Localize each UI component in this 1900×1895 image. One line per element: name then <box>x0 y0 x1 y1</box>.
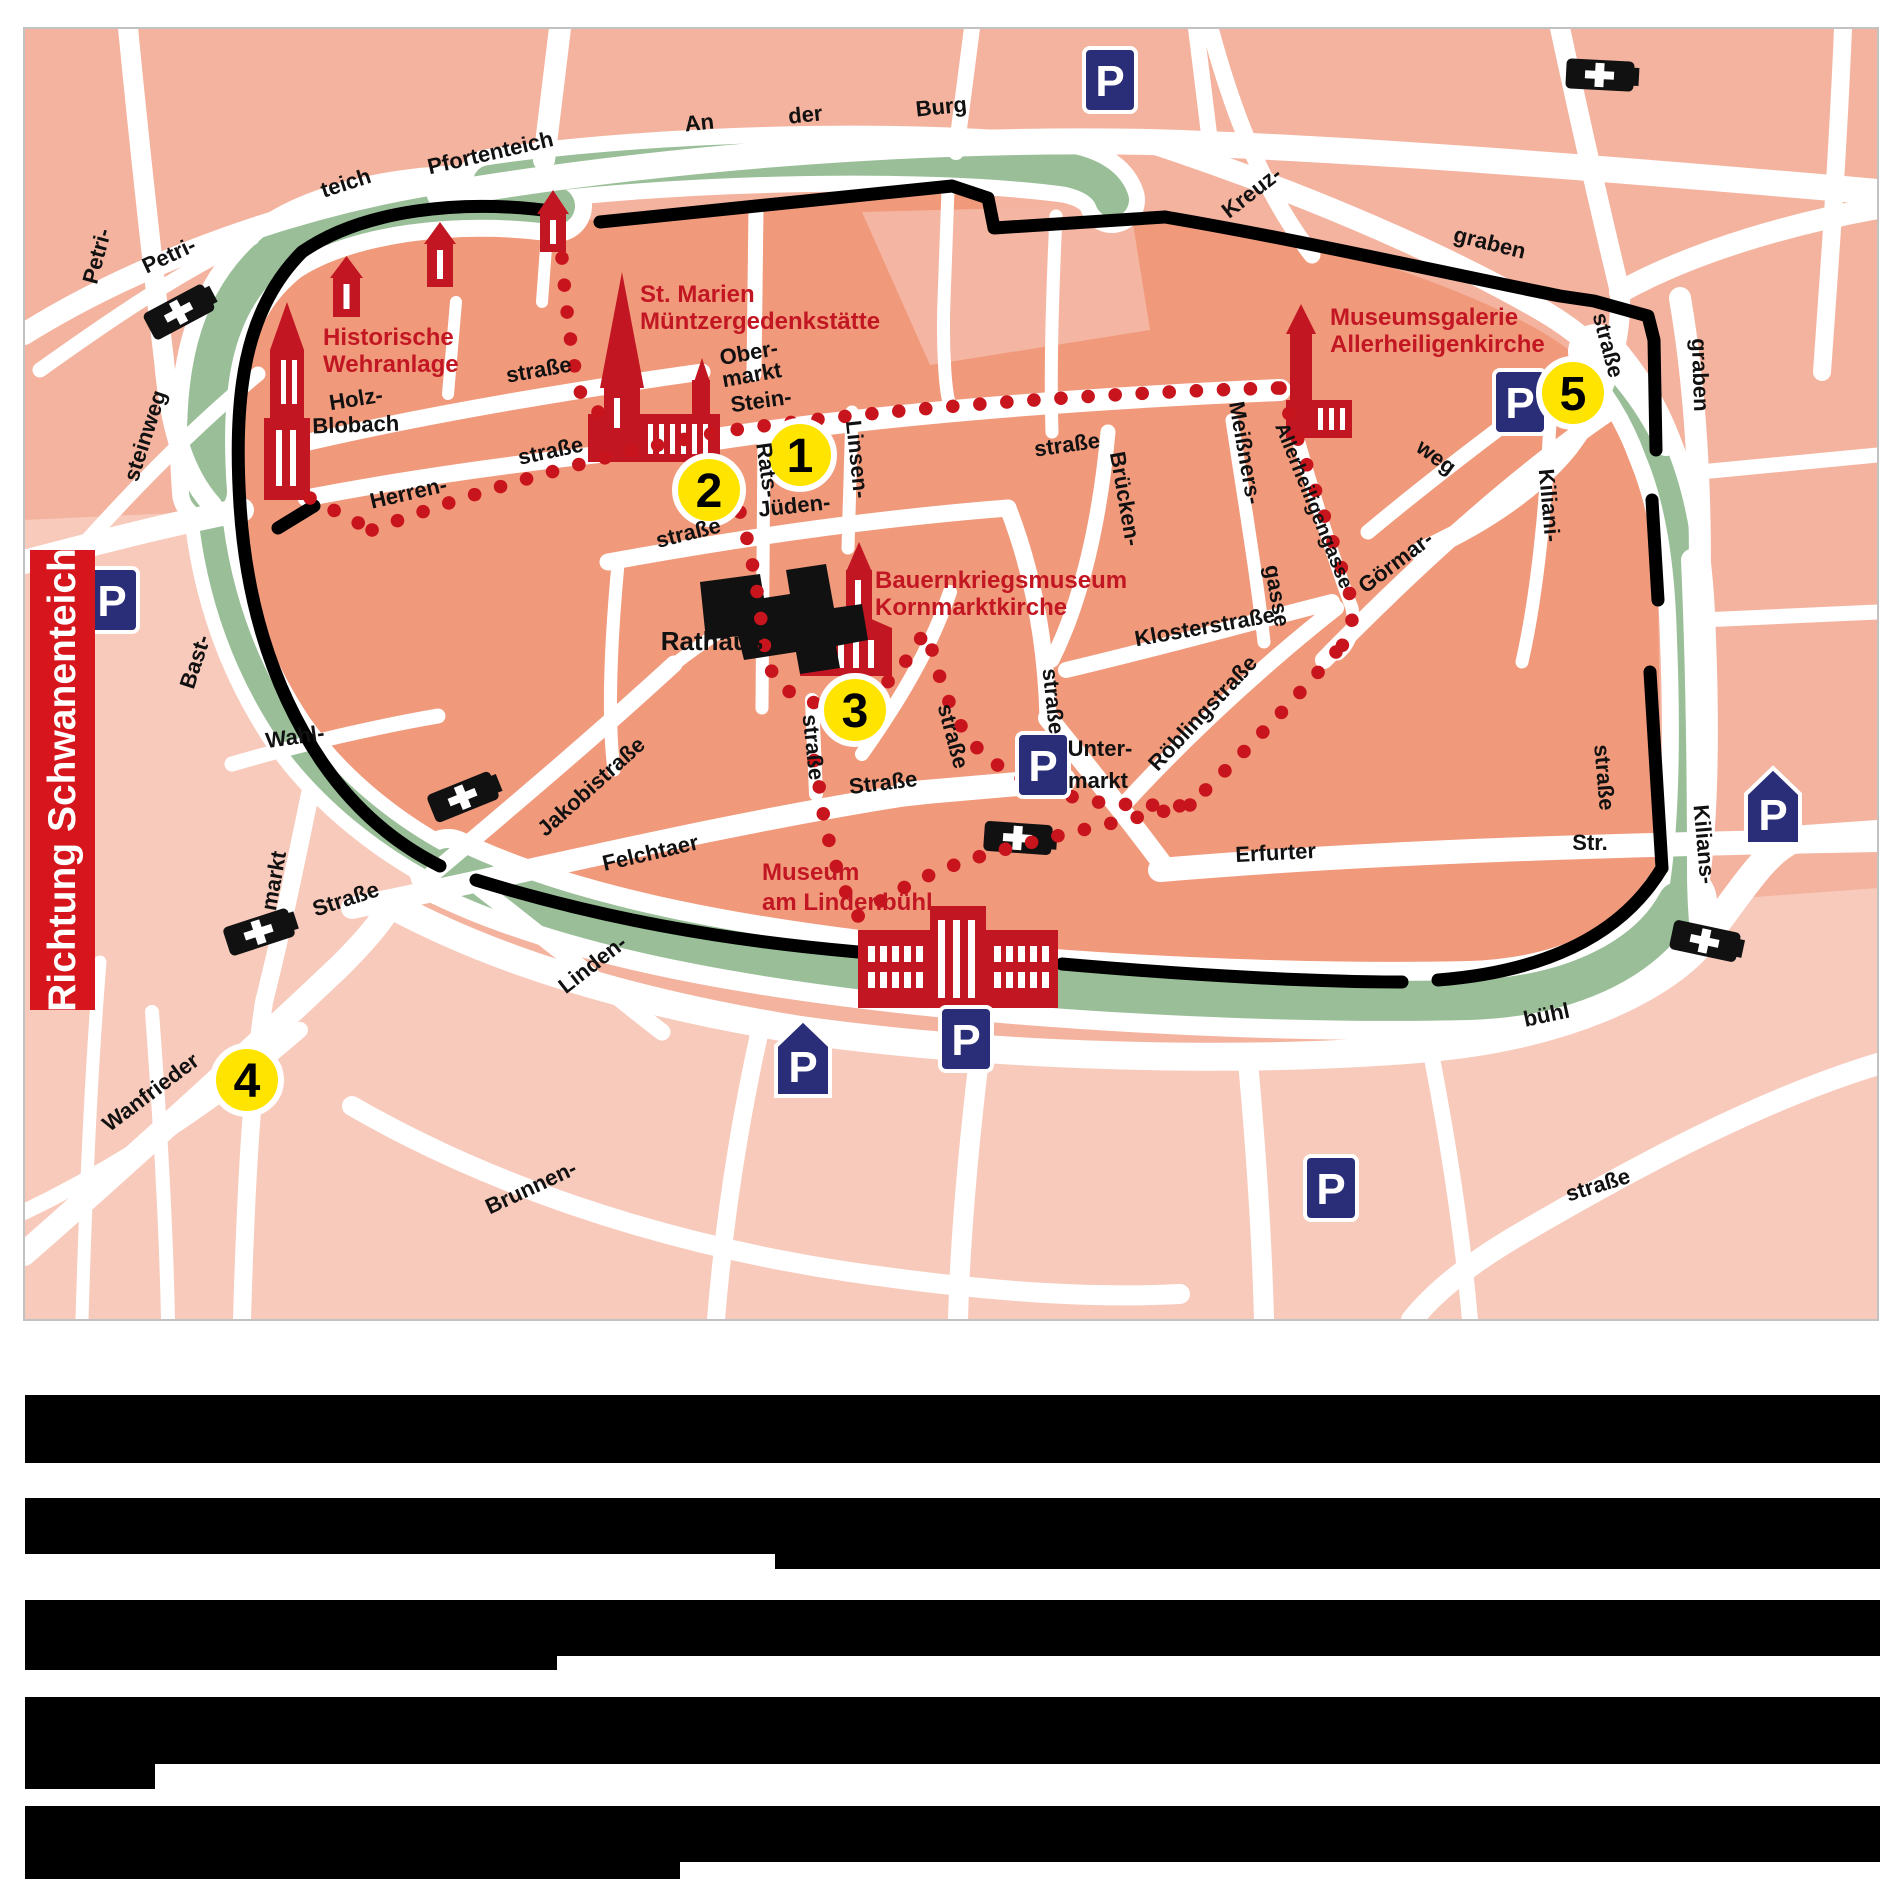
museum-window <box>994 972 1001 988</box>
street <box>943 190 950 404</box>
church-window <box>1329 408 1334 430</box>
tower-window <box>550 220 556 244</box>
church-window <box>1318 408 1323 430</box>
street-label: graben <box>1687 338 1715 412</box>
museum-window <box>1006 972 1013 988</box>
museum-window <box>904 972 911 988</box>
street <box>1702 612 1878 620</box>
station-number: 1 <box>787 430 814 483</box>
museum-window <box>880 972 887 988</box>
street-label: markt <box>1068 768 1129 793</box>
parking-letter: P <box>1758 791 1787 840</box>
church-icon <box>1565 58 1639 92</box>
street <box>611 564 618 770</box>
landmark-label-st-marien: Müntzergedenkstätte <box>640 308 880 335</box>
parking-icon: P <box>1017 733 1069 797</box>
parking-icon: P <box>1084 48 1136 112</box>
church-window <box>670 424 675 454</box>
street-label: Str. <box>1572 830 1607 855</box>
museum-window <box>1006 946 1013 962</box>
station-marker-5: 5 <box>1539 359 1607 427</box>
tower-window <box>437 250 443 279</box>
tower-window <box>276 430 282 486</box>
direction-banner-label: Richtung Schwanenteich <box>41 548 85 1012</box>
redacted-text-line <box>25 1764 155 1789</box>
landmark-label-historische-wehranlage: Historische <box>323 324 454 351</box>
landmark-label-st-marien: St. Marien <box>640 281 755 308</box>
parking-letter: P <box>788 1043 817 1092</box>
museum-window <box>994 946 1001 962</box>
page: PPPPPPPP12345teichPfortenteichPetri-Petr… <box>0 0 1900 1895</box>
parking-icon: P <box>940 1007 992 1071</box>
landmark-label-museumsgalerie: Museumsgalerie <box>1330 304 1518 331</box>
redacted-text-line <box>775 1554 1880 1569</box>
museum-window <box>868 946 875 962</box>
parking-letter: P <box>1505 379 1534 428</box>
street-label: Blobach <box>312 410 400 438</box>
landmark-label-museum-am-lindenbuehl: Museum <box>762 859 859 886</box>
street-label: Unter- <box>1068 736 1133 761</box>
museum-window <box>968 920 975 998</box>
redacted-text-line <box>25 1806 1880 1862</box>
museum-window <box>938 920 945 998</box>
redacted-text-line <box>25 1498 1880 1554</box>
museum-window <box>904 946 911 962</box>
church-window <box>648 424 653 454</box>
parking-letter: P <box>97 577 126 626</box>
museum-window <box>880 946 887 962</box>
direction-banner: Richtung Schwanenteich <box>30 550 95 1010</box>
church-icon <box>983 821 1058 856</box>
museum-window <box>1042 972 1049 988</box>
parking-letter: P <box>1316 1165 1345 1214</box>
station-number: 2 <box>696 465 723 518</box>
tower-window <box>290 430 296 486</box>
street-label: Erfurter <box>1235 838 1317 867</box>
landmark-label-bauernkriegsmuseum: Kornmarktkirche <box>875 594 1067 621</box>
church-window <box>1340 408 1345 430</box>
redacted-text-line <box>25 1600 1880 1656</box>
museum-window <box>916 972 923 988</box>
redacted-text-line <box>25 1656 557 1670</box>
station-number: 5 <box>1560 368 1587 421</box>
church-window <box>853 640 859 668</box>
street-label: Rathaus <box>661 626 764 656</box>
tower-window <box>292 360 297 404</box>
tower-icon <box>264 418 310 500</box>
redacted-text-line <box>25 1395 1880 1463</box>
museum-window <box>953 920 960 998</box>
city-wall-segment <box>1652 500 1658 600</box>
street-label: Burg <box>914 91 968 121</box>
landmark-label-historische-wehranlage: Wehranlage <box>323 351 459 378</box>
redacted-text-line <box>25 1862 680 1879</box>
landmark-label-museum-am-lindenbuehl: am Lindenbühl <box>762 889 933 916</box>
church-window <box>692 424 697 454</box>
museum-window <box>916 946 923 962</box>
parking-icon: P <box>1305 1156 1357 1220</box>
street-label: An <box>683 109 715 137</box>
museum-window <box>868 972 875 988</box>
station-number: 3 <box>842 685 869 738</box>
map-canvas: PPPPPPPP12345teichPfortenteichPetri-Petr… <box>24 28 1878 1320</box>
street-label: der <box>787 100 824 128</box>
tower-window <box>281 360 286 404</box>
parking-letter: P <box>1095 57 1124 106</box>
landmark-label-bauernkriegsmuseum: Bauernkriegsmuseum <box>875 567 1127 594</box>
parking-letter: P <box>951 1016 980 1065</box>
museum-window <box>1030 946 1037 962</box>
landmark-label-museumsgalerie: Allerheiligenkirche <box>1330 331 1545 358</box>
museum-window <box>892 972 899 988</box>
tower-icon <box>270 350 304 420</box>
museum-window <box>1042 946 1049 962</box>
station-marker-3: 3 <box>821 676 889 744</box>
redacted-text-line <box>25 1697 1880 1764</box>
tower-window <box>344 284 350 309</box>
museum-window <box>1030 972 1037 988</box>
museum-window <box>892 946 899 962</box>
church-window <box>614 398 620 428</box>
station-number: 4 <box>234 1055 261 1108</box>
church-window <box>868 640 874 668</box>
museum-window <box>1018 972 1025 988</box>
museum-window <box>1018 946 1025 962</box>
station-marker-4: 4 <box>213 1046 281 1114</box>
parking-letter: P <box>1028 742 1057 791</box>
